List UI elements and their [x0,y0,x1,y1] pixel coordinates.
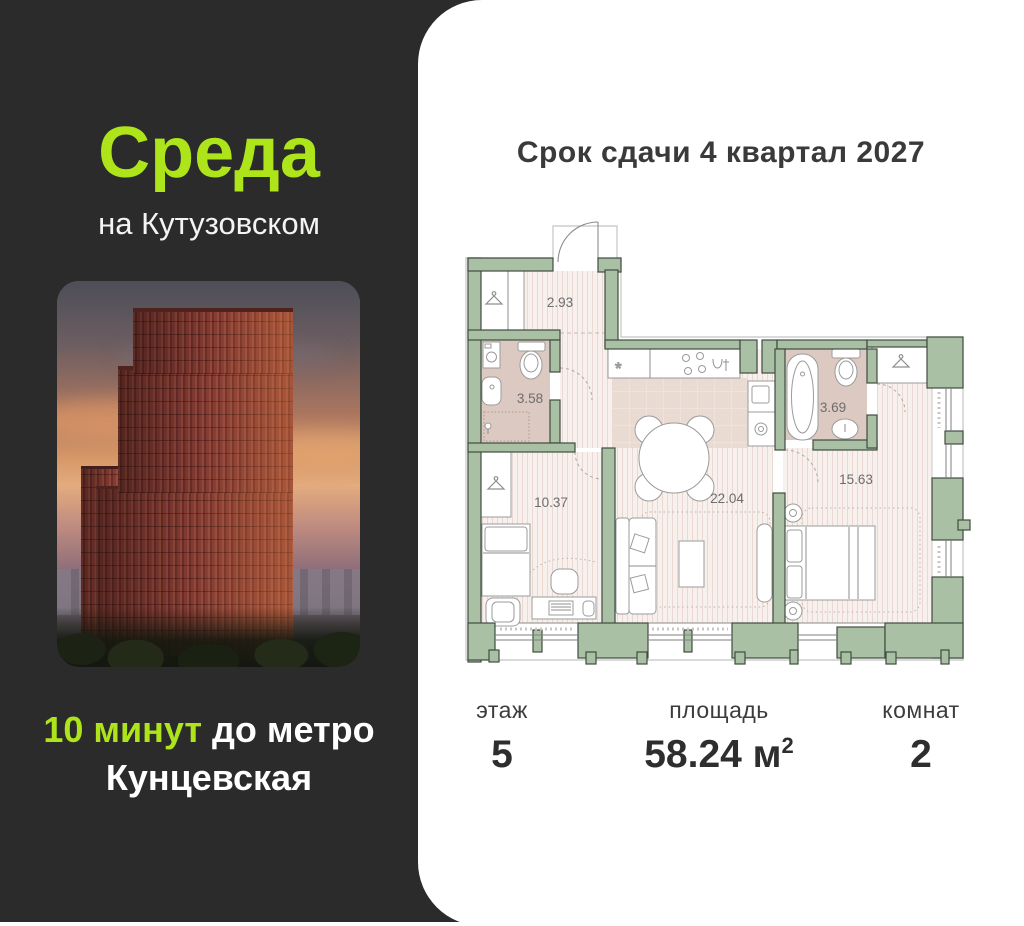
stat-floor-value: 5 [476,733,528,777]
stat-rooms: комнат 2 [882,697,959,777]
tower-mid-tier [118,366,294,494]
tv-console [757,524,772,602]
stat-rooms-value: 2 [882,733,959,777]
bathroom-large-area: 3.69 [820,400,846,415]
svg-text:*: * [615,359,622,378]
stat-area-label: площадь [644,697,794,724]
kitchen-counter: * [608,349,740,378]
building-photo [57,281,360,667]
trees [57,607,360,667]
bathroom-small-area: 3.58 [517,391,543,406]
coffee-table [679,541,704,587]
metro-distance: 10 минут до метро Кунцевская [0,706,418,802]
stat-floor: этаж 5 [476,697,528,777]
hallway-area: 2.93 [547,295,573,310]
metro-minutes: 10 минут [43,709,202,750]
stat-rooms-label: комнат [882,697,959,724]
small-room-area: 10.37 [534,495,568,510]
brand-panel: Среда на Кутузовском 10 минут до метро К… [0,0,418,922]
sofa [616,518,656,614]
floorplan-svg: * [455,215,975,675]
living-area: 22.04 [710,491,744,506]
stat-area-value: 58.24 м2 [644,733,794,777]
brand-logo: Среда [0,112,418,194]
kitchen-cabinets [748,381,775,446]
completion-date-title: Срок сдачи 4 квартал 2027 [418,136,1024,170]
listing-card[interactable]: Среда на Кутузовском 10 минут до метро К… [0,0,1024,926]
dining-set [635,416,714,501]
tower-top-tier [133,308,294,374]
bedroom-area: 15.63 [839,472,873,487]
stat-floor-label: этаж [476,697,528,724]
stat-area: площадь 58.24 м2 [644,697,794,777]
metro-rest: до метро [202,709,375,750]
metro-station: Кунцевская [106,757,312,798]
brand-logo-subtitle: на Кутузовском [0,206,418,242]
